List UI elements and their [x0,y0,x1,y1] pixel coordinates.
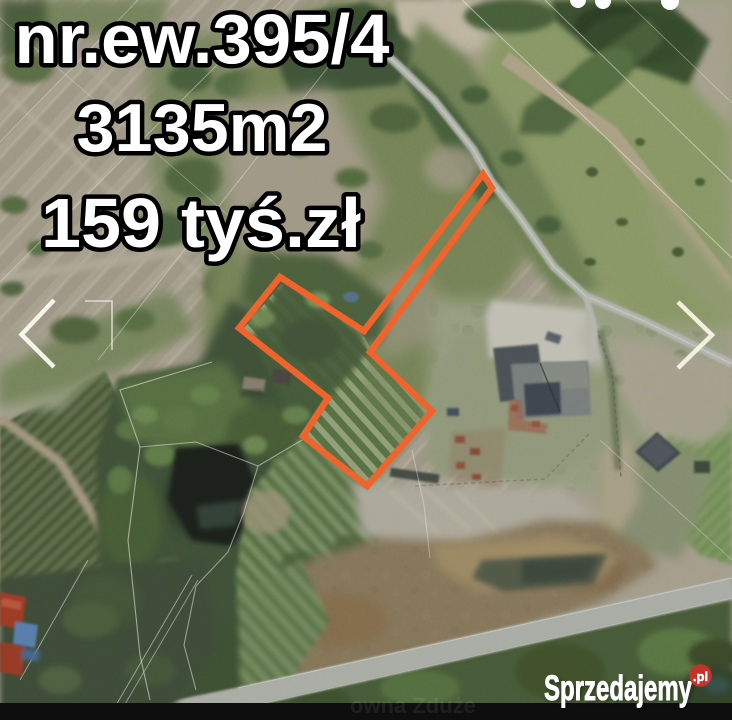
svg-text:nr.ew.395/4: nr.ew.395/4 [15,0,390,78]
svg-text:owna Zduże: owna Zduże [350,693,476,718]
svg-text:159 tyś.zł: 159 tyś.zł [41,184,361,262]
svg-text:3135m2: 3135m2 [77,90,328,166]
svg-text:Sprzedajemy: Sprzedajemy [544,669,692,708]
